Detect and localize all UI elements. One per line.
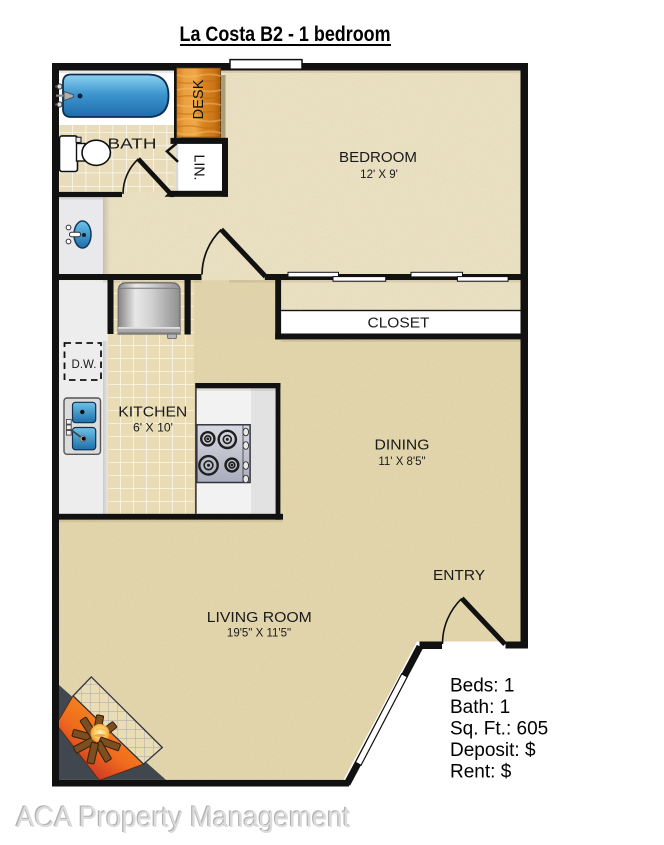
svg-text:19'5" X 11'5": 19'5" X 11'5" — [227, 628, 291, 640]
svg-text:DINING: DINING — [375, 436, 430, 453]
svg-text:Deposit: $: Deposit: $ — [450, 740, 536, 761]
svg-text:LIVING ROOM: LIVING ROOM — [207, 609, 312, 626]
svg-text:Sq. Ft.: 605: Sq. Ft.: 605 — [450, 719, 548, 740]
svg-text:Beds: 1: Beds: 1 — [450, 676, 514, 697]
svg-text:DESK: DESK — [190, 80, 207, 120]
svg-text:BATH: BATH — [108, 137, 157, 153]
svg-text:Rent: $: Rent: $ — [450, 762, 512, 783]
svg-text:Bath: 1: Bath: 1 — [450, 697, 510, 718]
svg-text:12' X 9': 12' X 9' — [360, 169, 398, 181]
svg-text:CLOSET: CLOSET — [368, 315, 430, 332]
svg-text:6' X 10': 6' X 10' — [133, 423, 173, 435]
svg-text:ACA Property Management: ACA Property Management — [16, 801, 351, 834]
svg-text:11' X 8'5": 11' X 8'5" — [378, 456, 425, 468]
svg-text:ENTRY: ENTRY — [433, 567, 485, 584]
svg-text:BEDROOM: BEDROOM — [339, 149, 417, 166]
svg-text:KITCHEN: KITCHEN — [118, 403, 187, 420]
svg-text:D.W.: D.W. — [72, 359, 97, 371]
svg-text:La Costa B2 - 1 bedroom: La Costa B2 - 1 bedroom — [180, 22, 391, 46]
svg-text:LIN.: LIN. — [190, 155, 207, 181]
